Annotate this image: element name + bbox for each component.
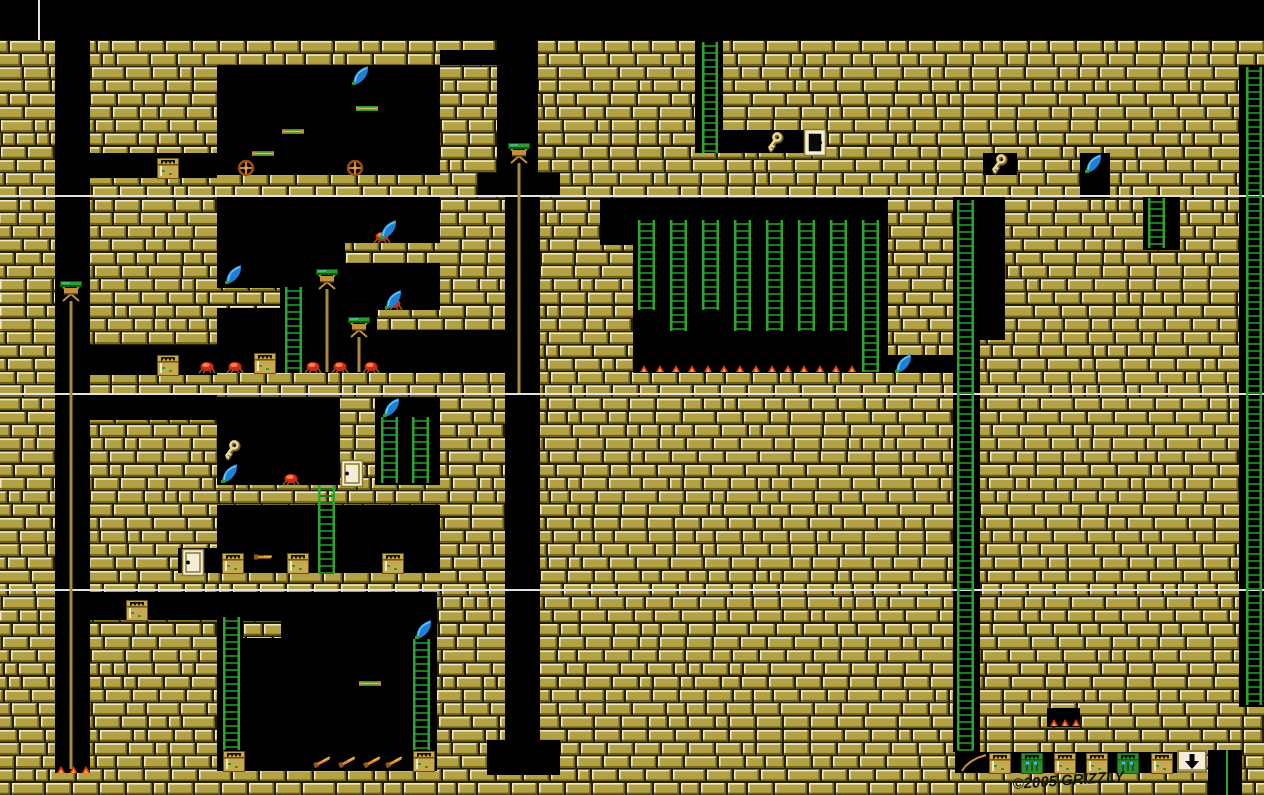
game-level-map (0, 0, 1264, 795)
level-map-canvas (0, 0, 1264, 795)
